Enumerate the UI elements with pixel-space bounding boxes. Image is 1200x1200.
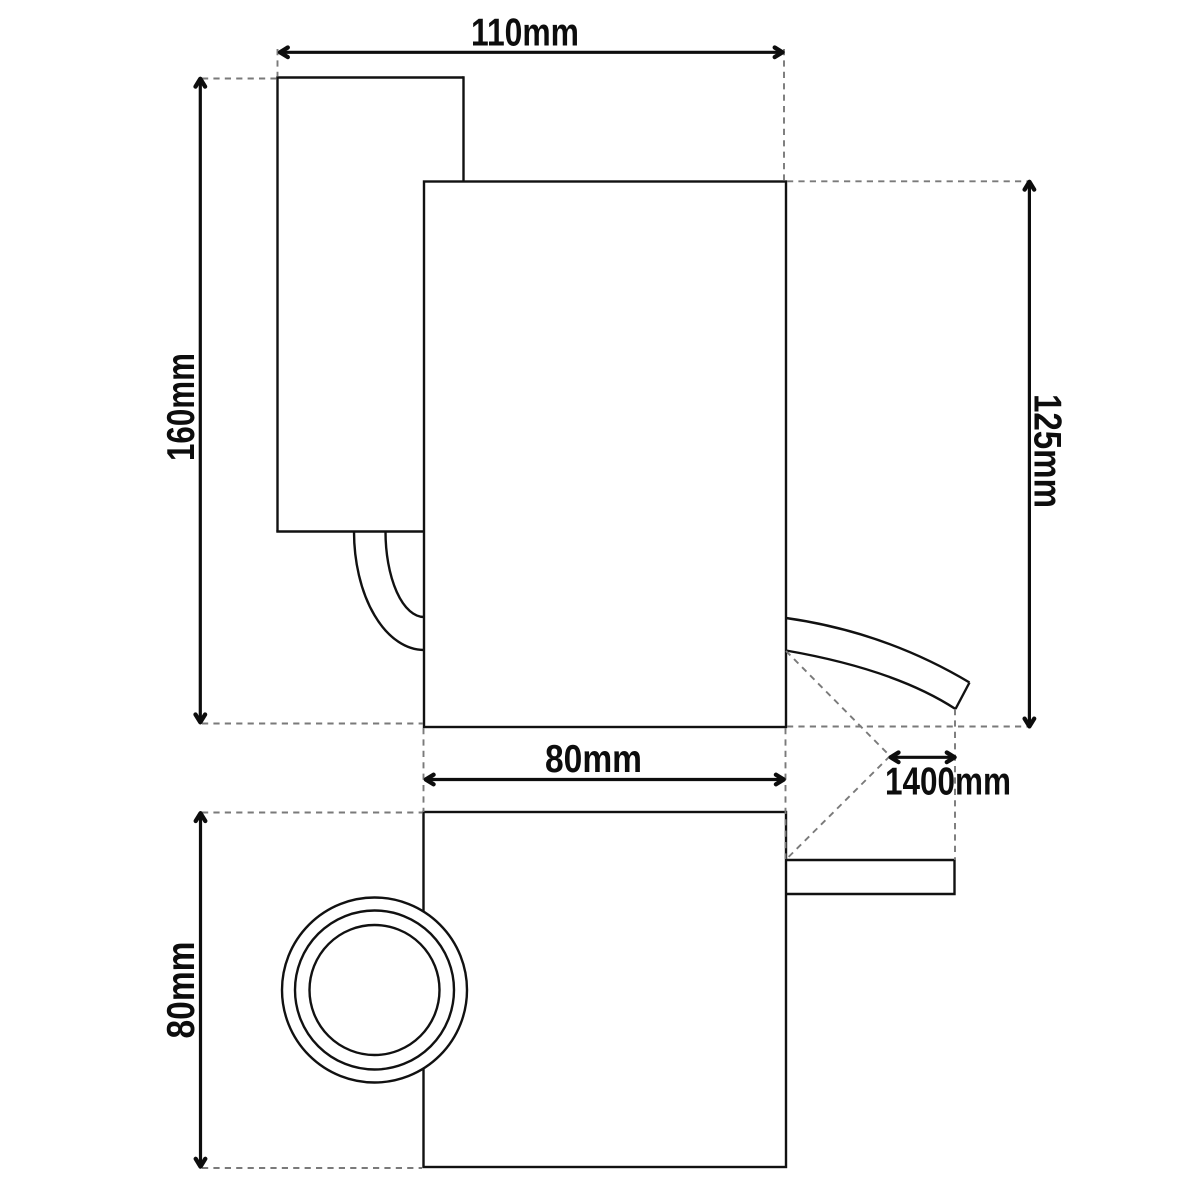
svg-text:160mm: 160mm: [160, 353, 203, 461]
svg-text:80mm: 80mm: [545, 738, 642, 781]
svg-text:80mm: 80mm: [160, 942, 203, 1039]
svg-text:125mm: 125mm: [1026, 394, 1069, 508]
svg-text:1400mm: 1400mm: [885, 760, 1011, 803]
svg-text:110mm: 110mm: [471, 11, 579, 54]
